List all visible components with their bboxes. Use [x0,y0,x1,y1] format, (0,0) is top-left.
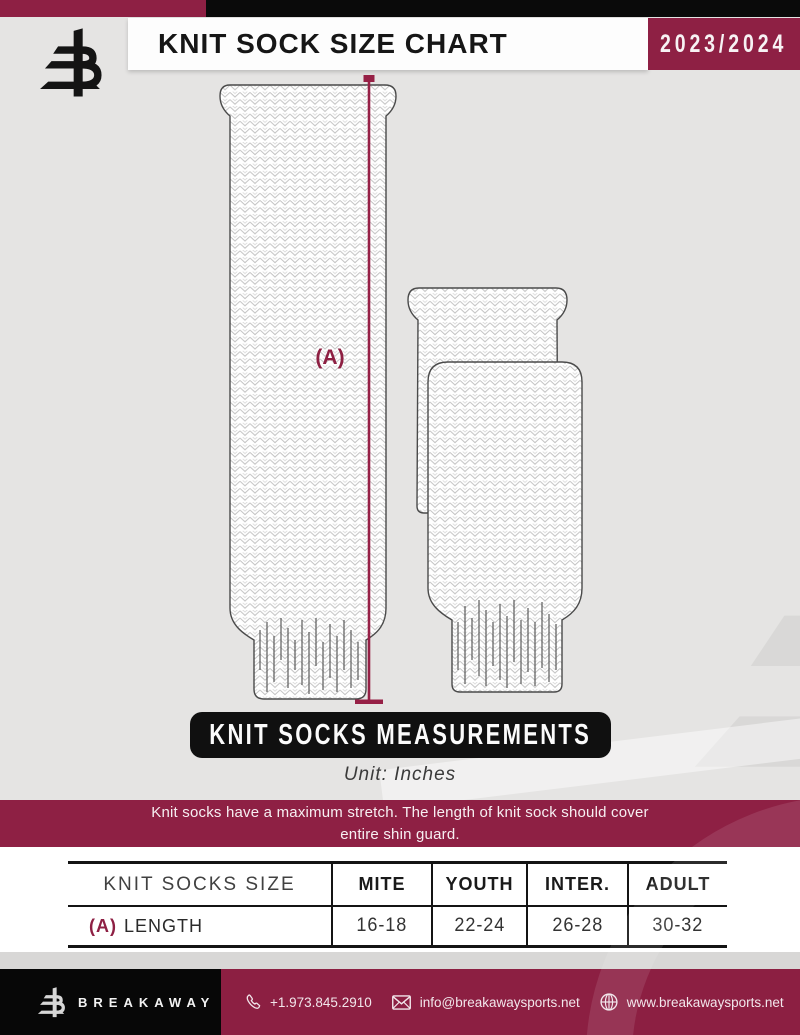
length-youth: 22-24 [454,915,505,937]
size-table: KNIT SOCKS SIZE MITE YOUTH INTER. ADULT … [68,861,727,948]
row-label-text: LENGTH [124,916,203,937]
notice-line-1: Knit socks have a maximum stretch. The l… [151,802,648,824]
breakaway-footer-logo-icon [30,983,66,1021]
size-table-length-row: (A) LENGTH 16-18 22-24 26-28 30-32 [68,907,727,945]
notice-banner: Knit socks have a maximum stretch. The l… [0,800,800,847]
header-mite: MITE [331,864,431,905]
measure-label-a: (A) [315,346,344,369]
title-bar: KNIT SOCK SIZE CHART [128,18,648,70]
sock-illustration-small [428,362,582,692]
measurements-banner: KNIT SOCKS MEASUREMENTS [190,712,611,758]
measurements-banner-label: KNIT SOCKS MEASUREMENTS [210,719,592,752]
footer-website-link[interactable]: www.breakawaysports.net [599,992,784,1012]
footer-brand-block: BREAKAWAY [0,969,221,1035]
footer: BREAKAWAY +1.973.845.2910 info@breakaway… [0,969,800,1035]
notice-line-2: entire shin guard. [340,824,460,846]
sock-illustrations: (A) [170,70,630,715]
knit-sock-size-chart-page: KNIT SOCK SIZE CHART 2023/2024 [0,0,800,1035]
header-adult: ADULT [627,864,727,905]
length-inter: 26-28 [552,915,603,937]
footer-website-text: www.breakawaysports.net [627,995,784,1010]
footer-email-text: info@breakawaysports.net [420,995,580,1010]
size-table-header-row: KNIT SOCKS SIZE MITE YOUTH INTER. ADULT [68,864,727,907]
footer-phone-text: +1.973.845.2910 [270,995,372,1010]
phone-icon [243,993,262,1012]
globe-icon [599,992,619,1012]
top-accent-strip-black [206,0,800,17]
bottom-gray-band [0,952,800,969]
length-adult: 30-32 [653,915,704,937]
row-label-a-mark: (A) [89,916,117,937]
top-accent-strip-maroon [0,0,206,17]
page-title: KNIT SOCK SIZE CHART [158,28,508,60]
breakaway-logo-icon [22,20,104,104]
season-label: 2023/2024 [660,30,787,59]
season-badge: 2023/2024 [648,18,800,70]
header-youth: YOUTH [431,864,526,905]
header-knit-socks-size: KNIT SOCKS SIZE [68,864,331,905]
email-icon [391,994,412,1011]
footer-contact-bar: +1.973.845.2910 info@breakawaysports.net… [221,969,800,1035]
footer-brand-name: BREAKAWAY [78,995,215,1010]
header-inter: INTER. [526,864,627,905]
row-label-length: (A) LENGTH [68,907,331,945]
unit-label: Unit: Inches [170,764,630,786]
footer-phone-link[interactable]: +1.973.845.2910 [243,993,372,1012]
footer-email-link[interactable]: info@breakawaysports.net [391,994,580,1011]
length-mite: 16-18 [357,915,408,937]
